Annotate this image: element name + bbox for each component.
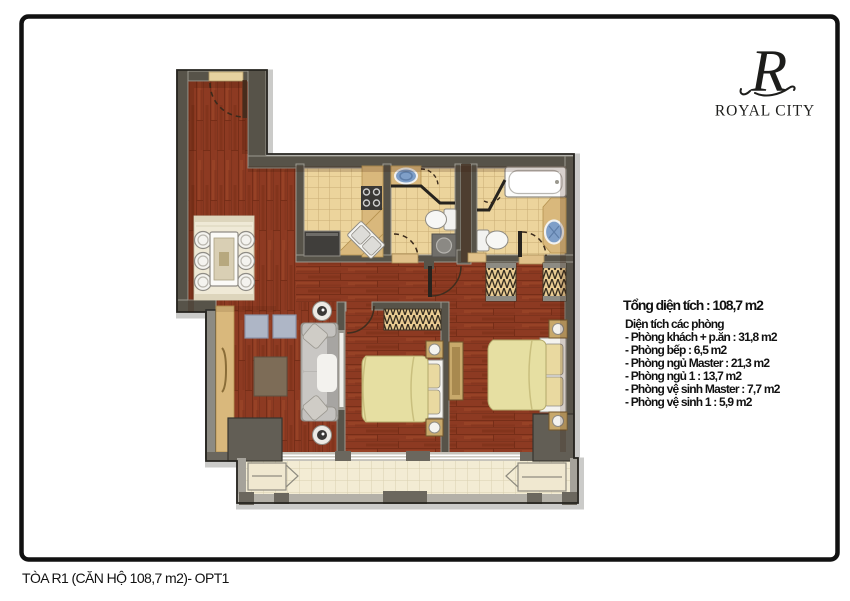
svg-text:Diện tích các phòng: Diện tích các phòng: [625, 317, 724, 331]
svg-text:- Phòng vệ sinh 1 : 5,9 m2: - Phòng vệ sinh 1 : 5,9 m2: [625, 395, 753, 409]
svg-text:- Phòng khách + p.ăn : 31,8 m2: - Phòng khách + p.ăn : 31,8 m2: [625, 330, 778, 344]
svg-text:TÒA R1 (CĂN HỘ 108,7 m2)- OPT1: TÒA R1 (CĂN HỘ 108,7 m2)- OPT1: [22, 570, 230, 586]
svg-text:- Phòng bếp : 6,5 m2: - Phòng bếp : 6,5 m2: [625, 343, 727, 357]
svg-text:- Phòng vệ sinh Master : 7,7: - Phòng vệ sinh Master : 7,7 m2: [625, 382, 781, 396]
svg-text:- Phòng ngủ Master : 21,3 m2: - Phòng ngủ Master : 21,3 m2: [625, 356, 770, 370]
svg-text:Tổng diện tích : 108,7 m2: Tổng diện tích : 108,7 m2: [623, 297, 764, 313]
svg-text:- Phòng ngủ 1 : 13,7 m2: - Phòng ngủ 1 : 13,7 m2: [625, 369, 742, 383]
svg-text:ROYAL CITY: ROYAL CITY: [715, 103, 815, 120]
